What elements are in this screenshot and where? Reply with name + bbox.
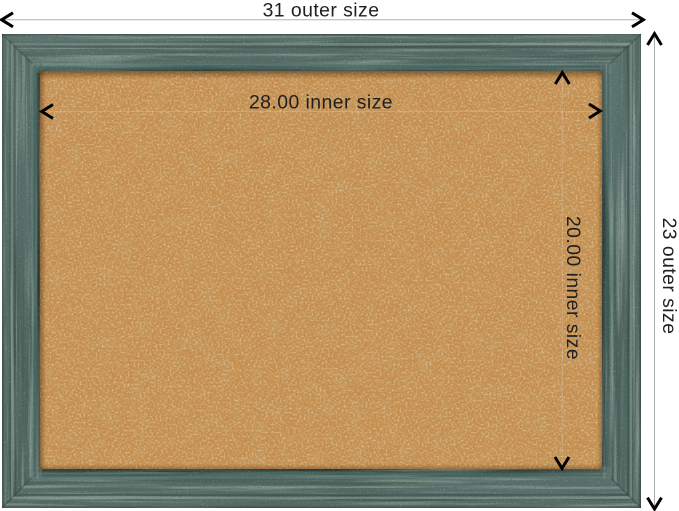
svg-text:28.00 inner size: 28.00 inner size [249, 91, 393, 113]
svg-text:23 outer size: 23 outer size [658, 218, 679, 335]
svg-text:31 outer size: 31 outer size [263, 0, 380, 22]
svg-text:20.00 inner size: 20.00 inner size [562, 216, 584, 360]
